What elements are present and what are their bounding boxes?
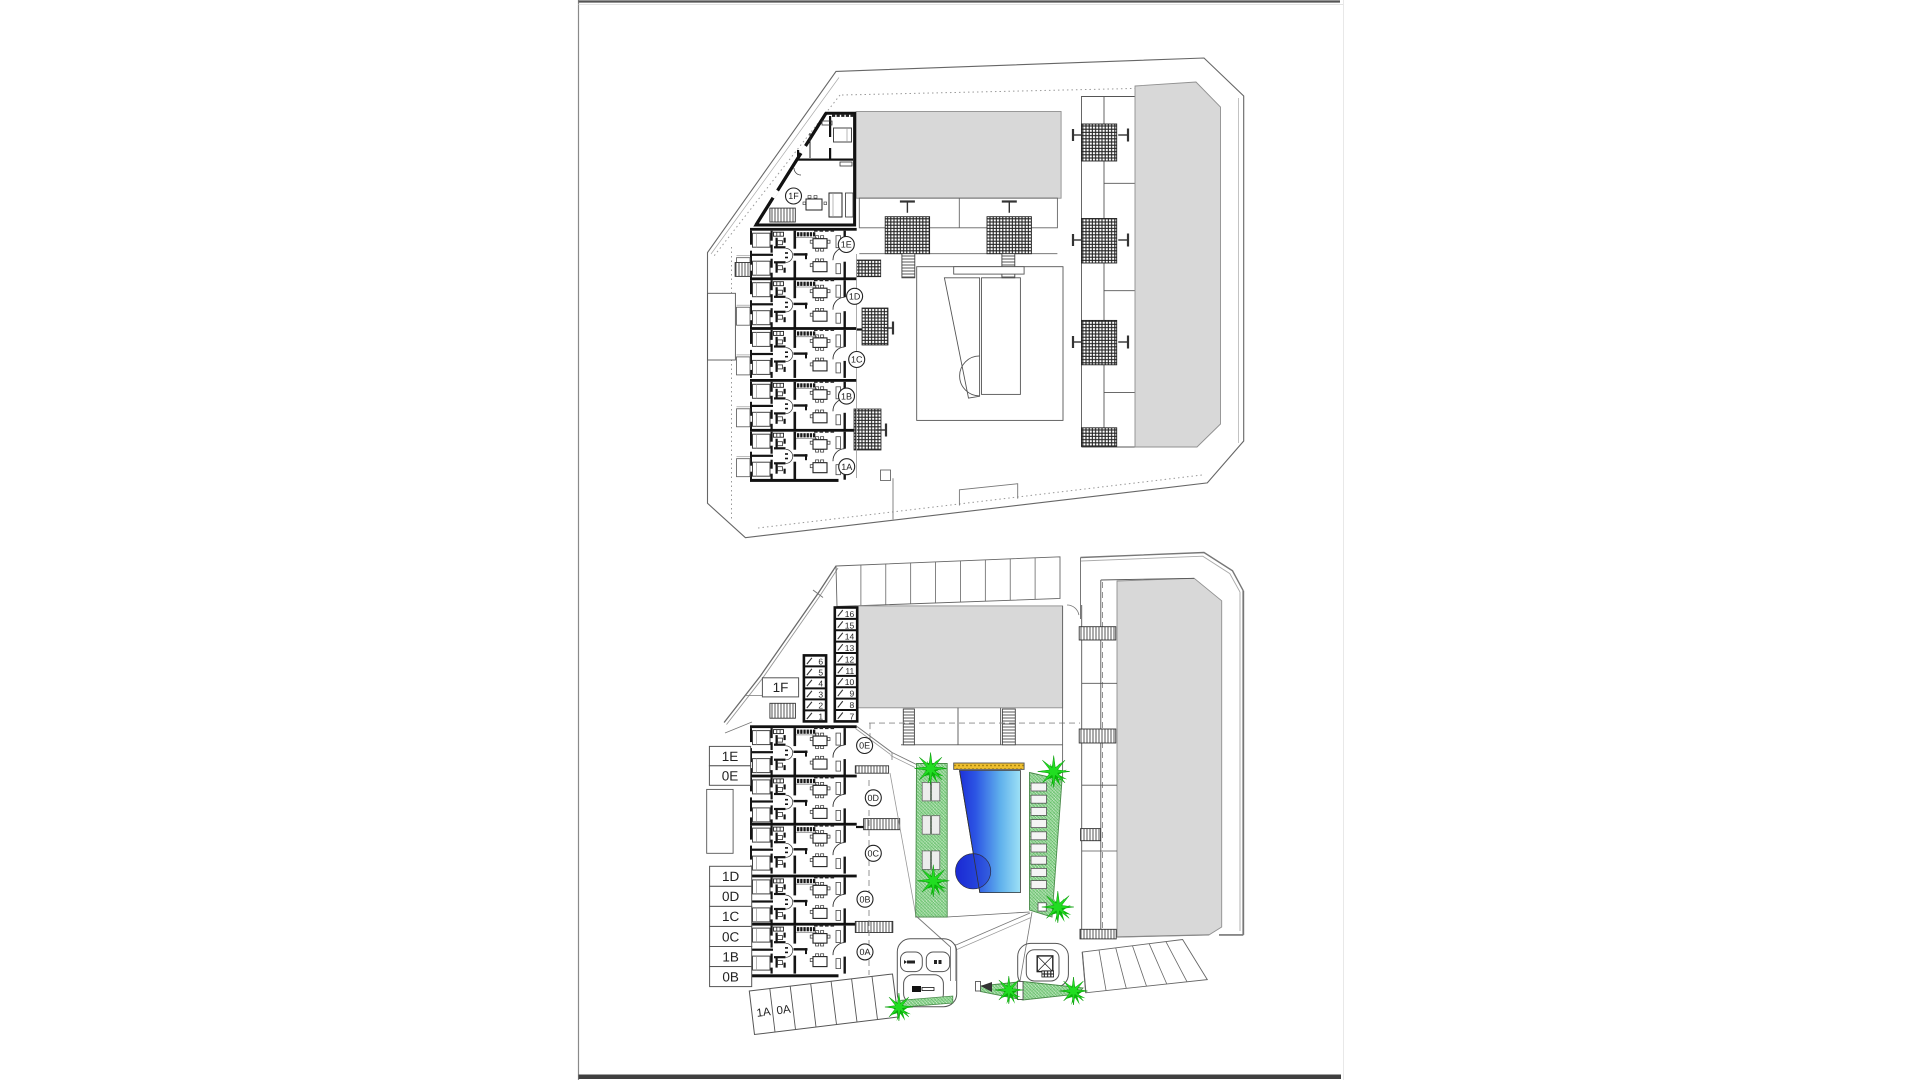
svg-text:8: 8 bbox=[849, 700, 854, 710]
svg-text:1E: 1E bbox=[722, 749, 739, 764]
svg-text:0C: 0C bbox=[722, 929, 740, 944]
svg-text:1A: 1A bbox=[756, 1006, 772, 1020]
svg-text:1F: 1F bbox=[788, 191, 799, 201]
svg-text:12: 12 bbox=[845, 654, 855, 664]
svg-text:9: 9 bbox=[849, 689, 854, 699]
svg-text:0E: 0E bbox=[859, 741, 870, 751]
svg-text:0E: 0E bbox=[722, 768, 739, 783]
svg-text:2: 2 bbox=[818, 701, 823, 711]
svg-text:13: 13 bbox=[845, 643, 855, 653]
svg-text:1: 1 bbox=[818, 712, 823, 722]
svg-text:4: 4 bbox=[818, 679, 823, 689]
svg-text:0B: 0B bbox=[722, 969, 739, 984]
svg-text:1C: 1C bbox=[851, 355, 863, 365]
svg-text:11: 11 bbox=[845, 666, 854, 676]
svg-text:10: 10 bbox=[845, 677, 855, 687]
svg-text:0A: 0A bbox=[859, 947, 870, 957]
svg-text:7: 7 bbox=[849, 711, 854, 721]
svg-text:1B: 1B bbox=[722, 949, 739, 964]
svg-text:16: 16 bbox=[845, 609, 855, 619]
svg-text:14: 14 bbox=[845, 632, 855, 642]
svg-text:5: 5 bbox=[818, 668, 823, 678]
svg-text:0C: 0C bbox=[868, 849, 880, 859]
svg-text:15: 15 bbox=[845, 620, 855, 630]
svg-text:1F: 1F bbox=[773, 680, 789, 695]
svg-text:0D: 0D bbox=[722, 889, 740, 904]
svg-text:1C: 1C bbox=[722, 909, 740, 924]
svg-text:3: 3 bbox=[818, 690, 823, 700]
svg-text:1E: 1E bbox=[841, 240, 852, 250]
svg-text:1B: 1B bbox=[841, 391, 852, 401]
svg-text:6: 6 bbox=[818, 657, 823, 667]
svg-text:0D: 0D bbox=[868, 793, 880, 803]
svg-text:1A: 1A bbox=[841, 462, 852, 472]
svg-text:0A: 0A bbox=[776, 1004, 792, 1018]
svg-text:1D: 1D bbox=[849, 292, 861, 302]
svg-text:1D: 1D bbox=[722, 869, 740, 884]
svg-text:0B: 0B bbox=[859, 894, 870, 904]
